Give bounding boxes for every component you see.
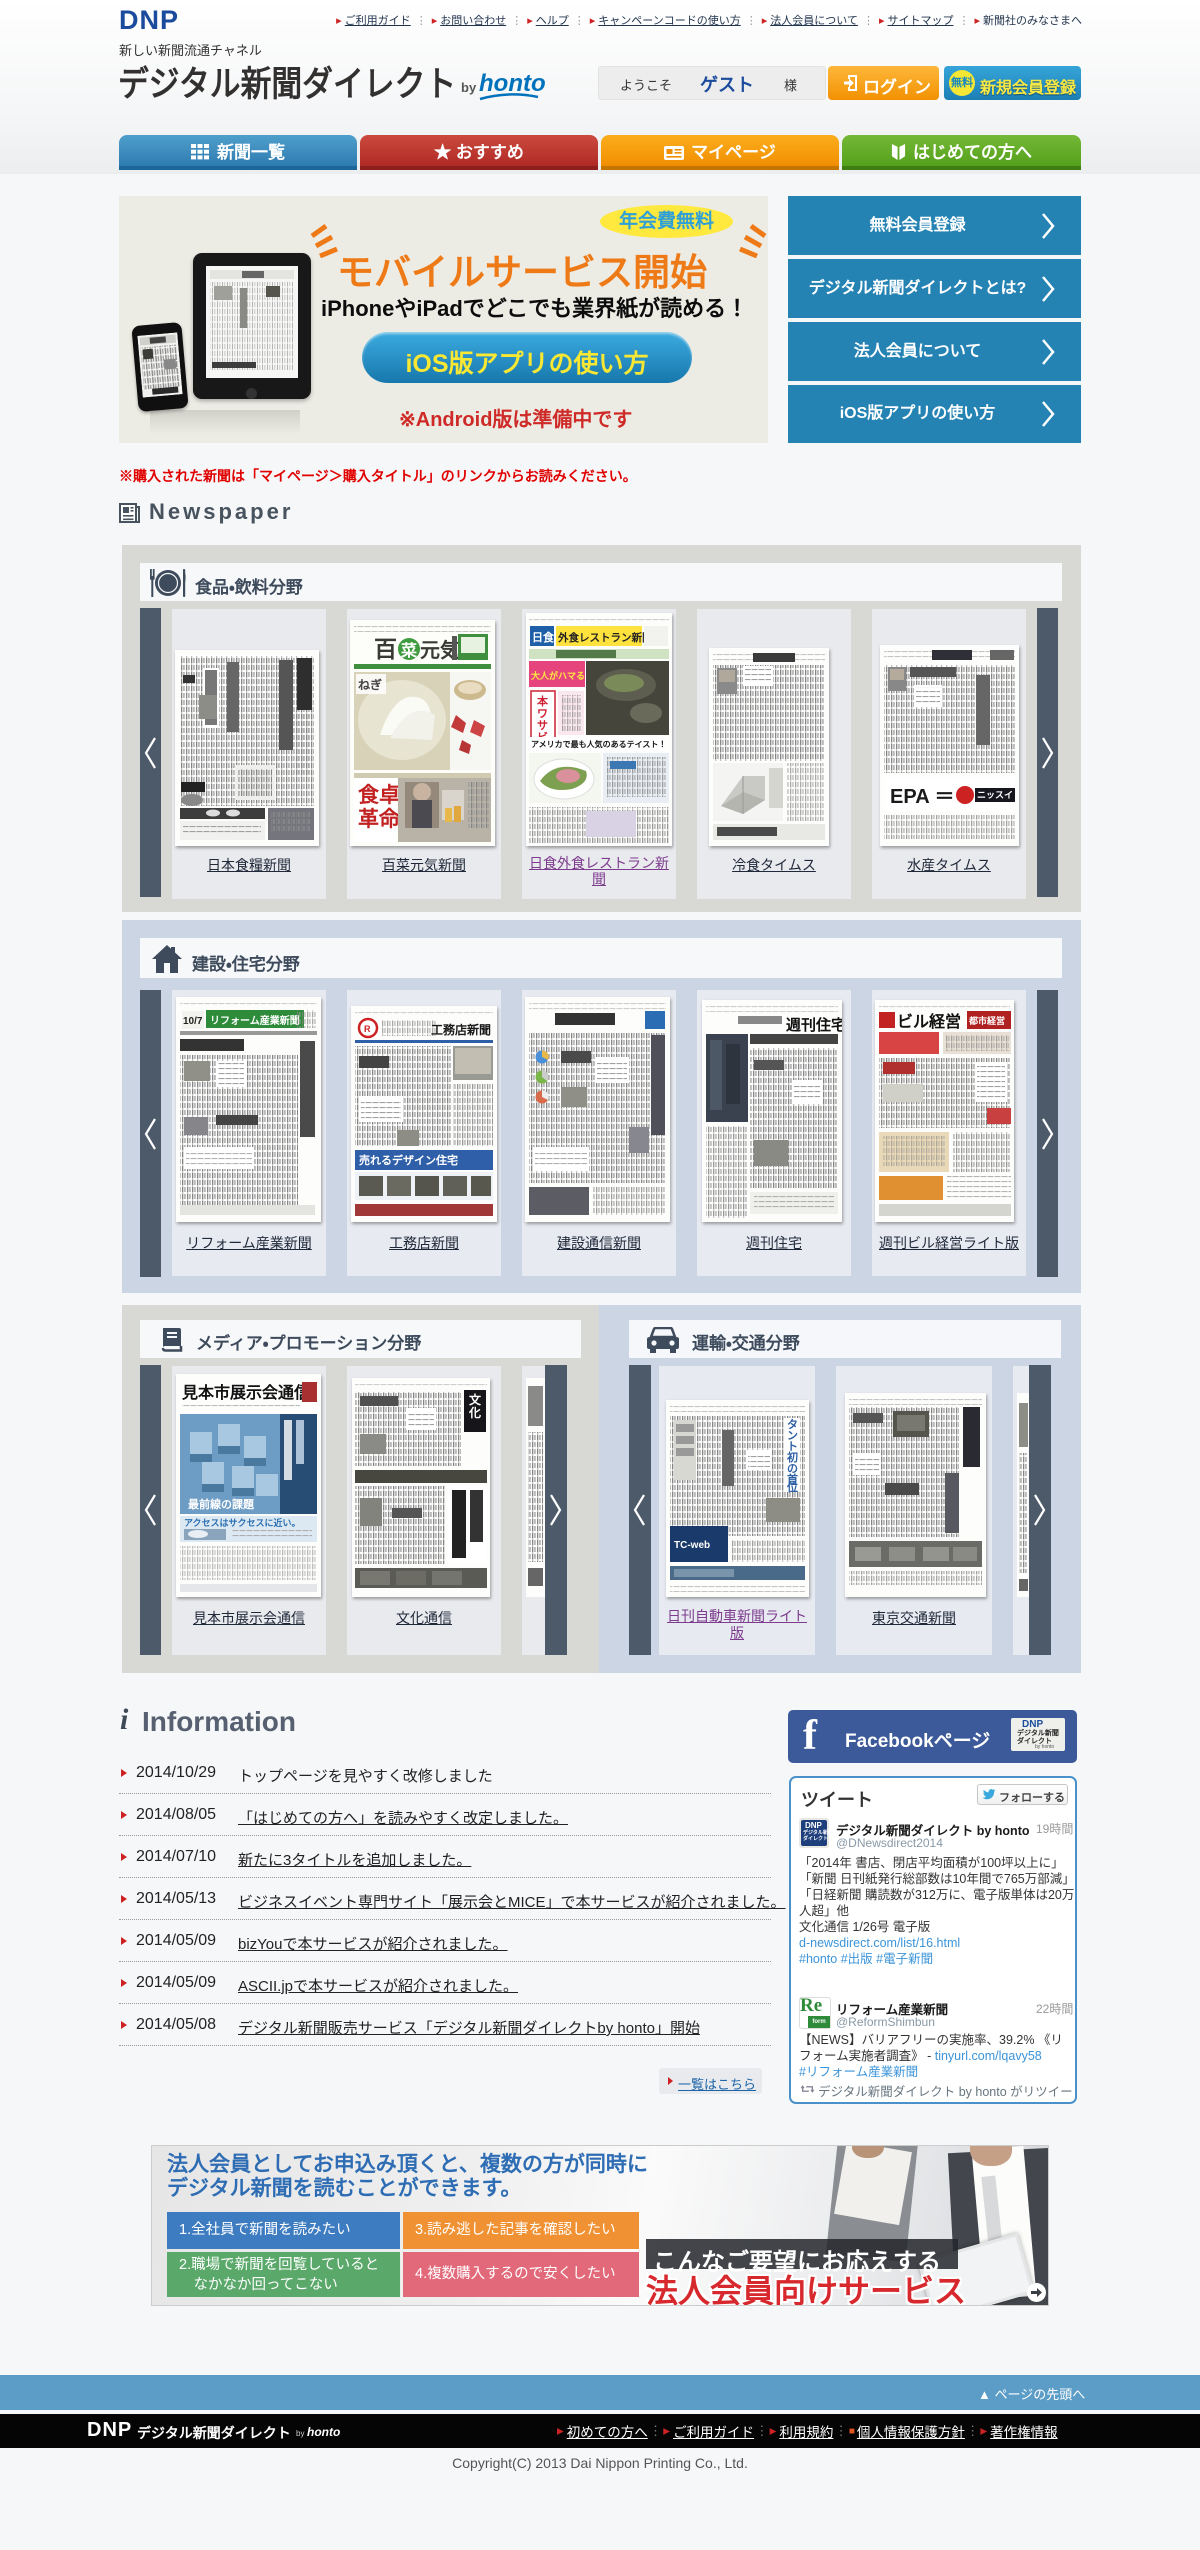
svg-text:文: 文 xyxy=(469,1392,482,1407)
svg-text:ねぎ: ねぎ xyxy=(358,677,382,692)
svg-text:菜: 菜 xyxy=(400,641,417,660)
svg-text:売れるデザイン住宅: 売れるデザイン住宅 xyxy=(359,1153,458,1167)
svg-text:百: 百 xyxy=(374,636,397,662)
svg-text:10/7: 10/7 xyxy=(183,1016,203,1027)
svg-text:食卓: 食卓 xyxy=(358,783,400,807)
svg-text:工務店新聞: 工務店新聞 xyxy=(431,1022,491,1037)
svg-text:TC-web: TC-web xyxy=(674,1540,710,1551)
svg-text:アメリカで最も人気のあるテイスト！: アメリカで最も人気のあるテイスト！ xyxy=(531,739,666,749)
svg-text:外食レストラン新聞: 外食レストラン新聞 xyxy=(557,631,653,644)
svg-text:位: 位 xyxy=(786,1480,798,1494)
svg-text:サ: サ xyxy=(537,719,548,732)
svg-text:ニッスイ: ニッスイ xyxy=(977,790,1013,800)
svg-text:都市経営: 都市経営 xyxy=(968,1015,1005,1026)
svg-text:アクセスはサクセスに近い。: アクセスはサクセスに近い。 xyxy=(184,1517,301,1528)
svg-text:日食: 日食 xyxy=(532,630,555,644)
svg-text:初: 初 xyxy=(786,1450,798,1464)
svg-text:大人がハマる: 大人がハマる xyxy=(531,670,585,681)
svg-text:EPA ＝: EPA ＝ xyxy=(890,786,954,808)
svg-text:最前線の課題: 最前線の課題 xyxy=(188,1497,255,1511)
svg-text:本: 本 xyxy=(536,694,549,708)
svg-text:革命: 革命 xyxy=(358,807,401,831)
svg-text:R: R xyxy=(364,1024,371,1034)
svg-text:化: 化 xyxy=(468,1405,481,1420)
svg-text:週刊住宅: 週刊住宅 xyxy=(786,1016,842,1034)
svg-text:ビル経営: ビル経営 xyxy=(897,1012,961,1031)
svg-text:ワ: ワ xyxy=(537,708,548,720)
svg-text:リフォーム産業新聞: リフォーム産業新聞 xyxy=(210,1014,300,1027)
svg-text:見本市展示会通信: 見本市展示会通信 xyxy=(181,1383,310,1402)
